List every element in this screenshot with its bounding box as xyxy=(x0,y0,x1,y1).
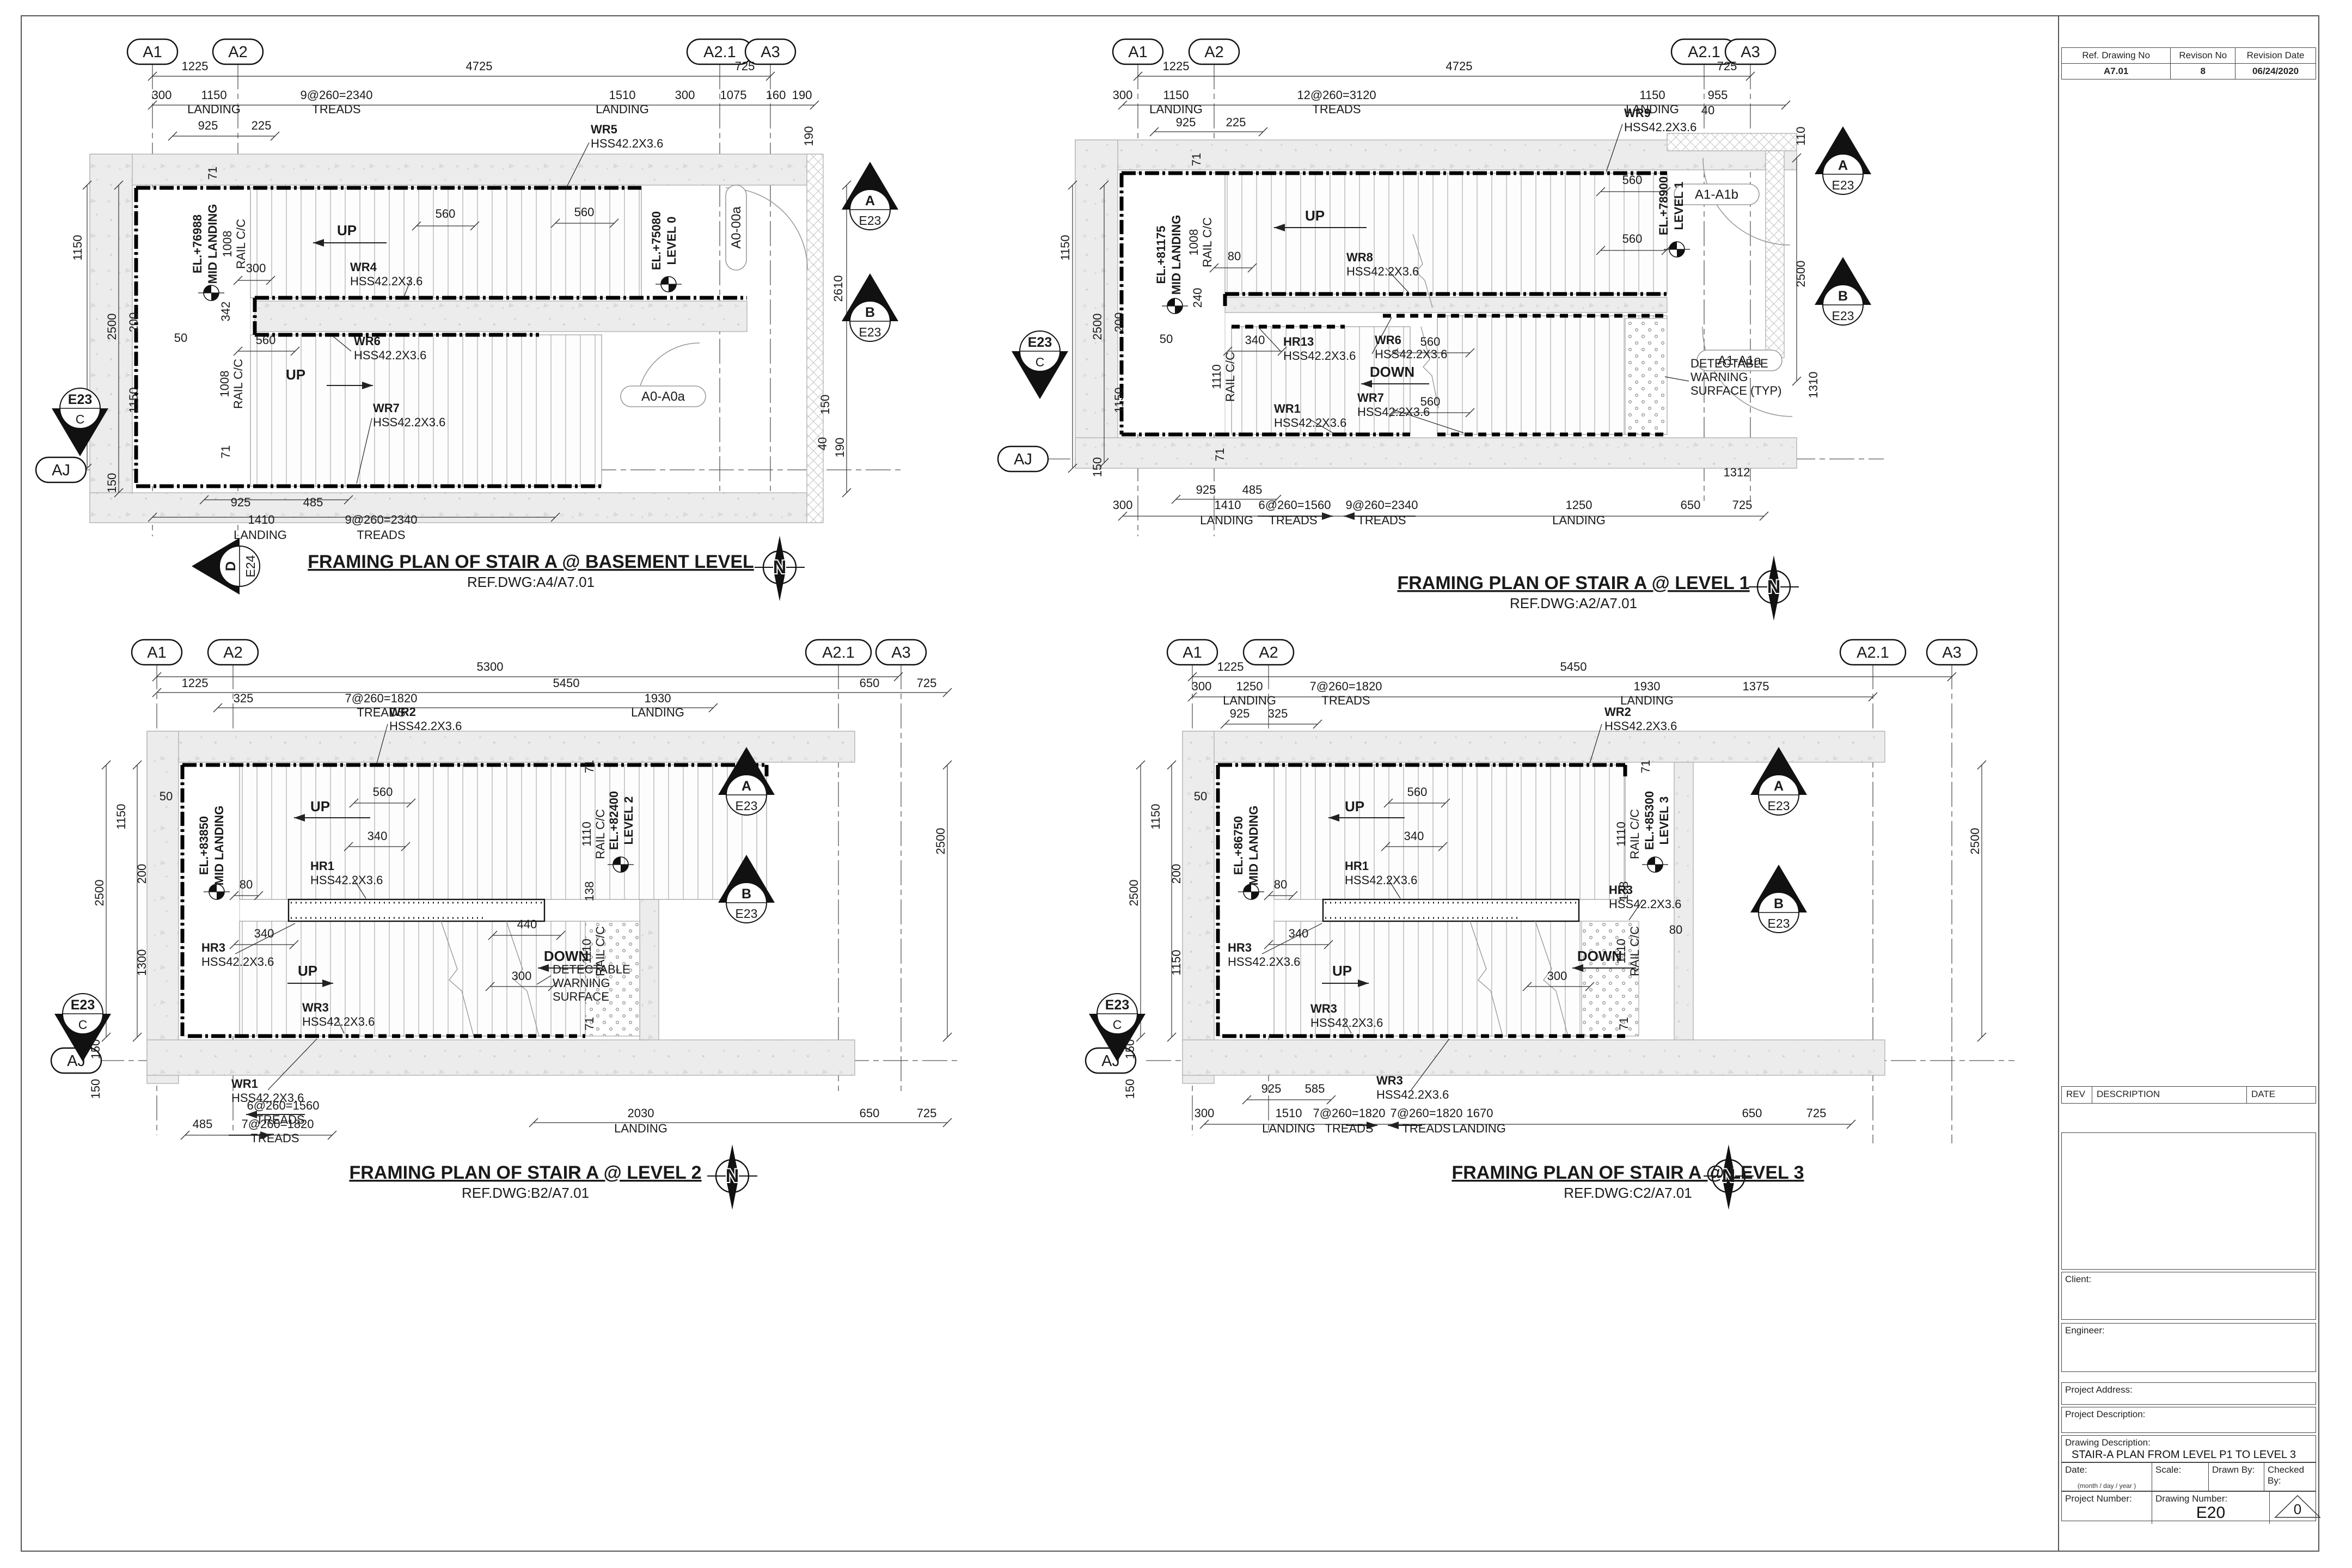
rev-table-header-date: Revision Date xyxy=(2235,48,2316,64)
drawing-number-value: E20 xyxy=(2152,1504,2269,1522)
date-label: Date: xyxy=(2065,1465,2087,1475)
project-address-box: Project Address: xyxy=(2061,1382,2316,1405)
revision-summary-table: Ref. Drawing No Revison No Revision Date… xyxy=(2061,47,2316,79)
drawing-description-value: STAIR-A PLAN FROM LEVEL P1 TO LEVEL 3 xyxy=(2072,1449,2296,1461)
number-row: Project Number: Drawing Number: E20 0 xyxy=(2061,1491,2316,1521)
date-scale-row: Date: (month / day / year ) Scale: Drawn… xyxy=(2061,1462,2316,1491)
drawn-by-label: Drawn By: xyxy=(2209,1463,2264,1491)
engineer-label: Engineer: xyxy=(2065,1325,2105,1336)
sheet-border xyxy=(21,15,2319,1552)
revision-triangle-cell: 0 xyxy=(2270,1492,2325,1524)
client-label: Client: xyxy=(2065,1274,2091,1285)
rev-table-ref: A7.01 xyxy=(2062,64,2171,79)
revision-triangle-icon: 0 xyxy=(2273,1493,2322,1520)
title-block: Ref. Drawing No Revison No Revision Date… xyxy=(2058,15,2319,1552)
drawing-sheet: .rail{stroke:#000;stroke-width:7;stroke-… xyxy=(0,0,2352,1568)
revision-history-header: REV DESCRIPTION DATE xyxy=(2061,1086,2316,1104)
notes-box xyxy=(2061,1132,2316,1270)
client-box: Client: xyxy=(2061,1272,2316,1320)
engineer-box: Engineer: xyxy=(2061,1323,2316,1372)
project-description-box: Project Description: xyxy=(2061,1407,2316,1433)
rev-table-revno: 8 xyxy=(2171,64,2235,79)
checked-by-label: Checked By: xyxy=(2264,1463,2316,1491)
drawing-description-box: Drawing Description: STAIR-A PLAN FROM L… xyxy=(2061,1435,2316,1462)
description-col: DESCRIPTION xyxy=(2092,1087,2247,1103)
rev-table-header-revno: Revison No xyxy=(2171,48,2235,64)
revision-mark-text: 0 xyxy=(2294,1501,2301,1517)
project-description-label: Project Description: xyxy=(2065,1409,2145,1420)
rev-table-date: 06/24/2020 xyxy=(2235,64,2316,79)
rev-col: REV xyxy=(2062,1087,2092,1103)
date-hint: (month / day / year ) xyxy=(2062,1482,2152,1490)
drawing-description-label: Drawing Description: xyxy=(2065,1437,2151,1448)
date-col: DATE xyxy=(2247,1087,2316,1103)
rev-table-header-ref: Ref. Drawing No xyxy=(2062,48,2171,64)
project-number-label: Project Number: xyxy=(2062,1492,2152,1524)
scale-label: Scale: xyxy=(2152,1463,2209,1491)
drawing-number-label: Drawing Number: xyxy=(2155,1493,2227,1504)
project-address-label: Project Address: xyxy=(2065,1385,2133,1395)
